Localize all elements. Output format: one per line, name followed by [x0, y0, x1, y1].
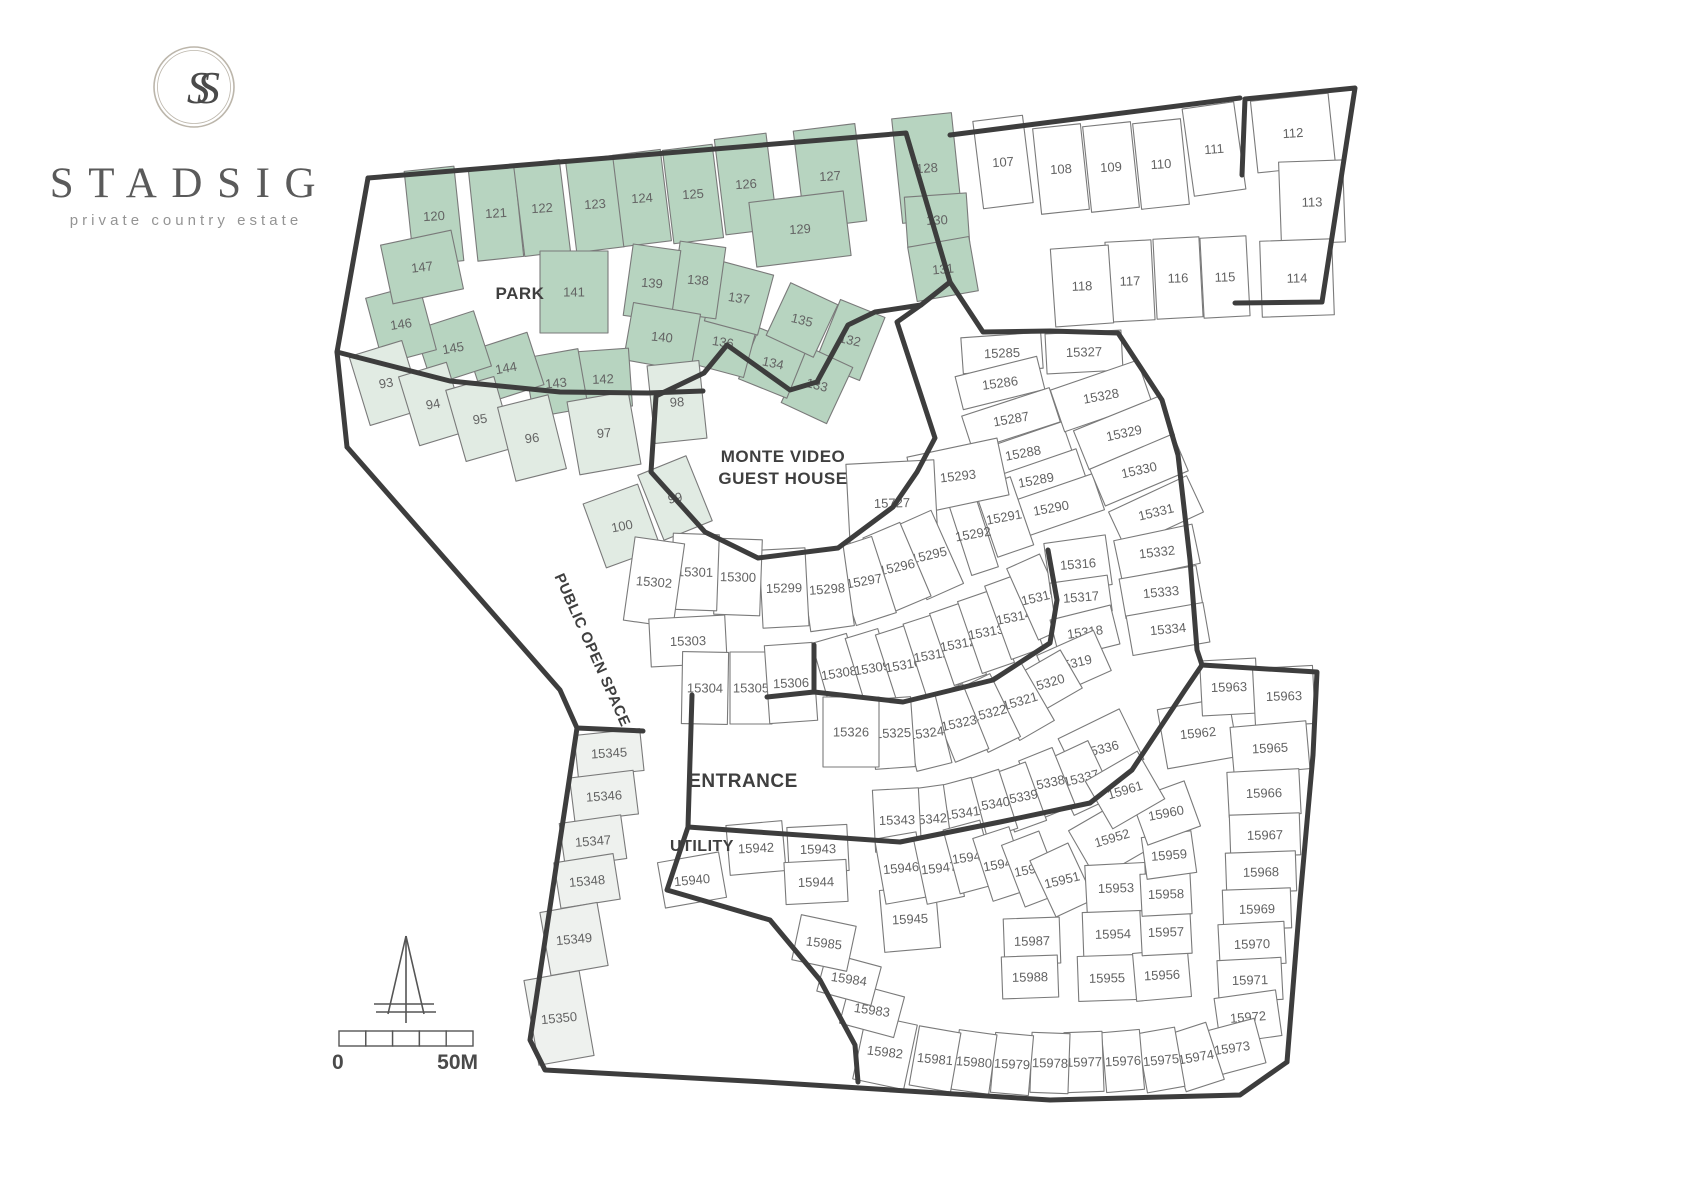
plot-15299: 15299: [759, 548, 809, 628]
plot-15346-label: 15346: [585, 787, 622, 804]
plot-15966: 15966: [1227, 769, 1301, 818]
plot-93-label: 93: [378, 374, 395, 391]
plot-15969-label: 15969: [1239, 901, 1275, 917]
plot-97: 97: [567, 391, 641, 475]
plot-95-label: 95: [472, 410, 489, 427]
plot-15944: 15944: [784, 859, 848, 904]
plot-15976-label: 15976: [1105, 1053, 1142, 1070]
plot-141-label: 141: [563, 285, 585, 300]
park-label: PARK: [496, 284, 545, 303]
plot-112-label: 112: [1282, 125, 1304, 141]
plot-15943-label: 15943: [800, 841, 837, 857]
plot-108-label: 108: [1050, 161, 1073, 177]
plot-129-label: 129: [789, 221, 812, 237]
plot-15285-label: 15285: [984, 345, 1021, 361]
estate-plots: 1528515286152871528815289152901529115292…: [623, 330, 1315, 1096]
reserve-plots: 153451534615347153481534915350: [524, 729, 644, 1066]
plot-127-label: 127: [819, 168, 842, 184]
plot-15325-label: 15325: [875, 725, 912, 741]
plot-117-label: 117: [1119, 273, 1140, 289]
plot-15316-label: 15316: [1059, 555, 1096, 573]
plot-15979-label: 15979: [994, 1056, 1031, 1073]
entrance-label: ENTRANCE: [688, 771, 798, 792]
plot-15978-label: 15978: [1032, 1055, 1068, 1071]
plot-15966-label: 15966: [1246, 785, 1283, 801]
logo: SS STADSIG private country estate: [50, 47, 330, 229]
plot-15942-label: 15942: [738, 840, 775, 857]
plot-15326: 15326: [823, 697, 879, 767]
plot-114: 114: [1260, 239, 1335, 317]
plot-115-label: 115: [1214, 269, 1235, 285]
plot-15348-label: 15348: [568, 872, 605, 890]
plot-15988-label: 15988: [1012, 969, 1048, 985]
plot-98-label: 98: [669, 394, 684, 410]
plot-15988: 15988: [1001, 955, 1058, 999]
plot-15959-label: 15959: [1150, 846, 1187, 864]
plot-15970-label: 15970: [1234, 936, 1271, 952]
plot-15968-label: 15968: [1243, 864, 1279, 880]
plot-15955-label: 15955: [1089, 970, 1125, 986]
plot-15953: 15953: [1085, 862, 1147, 913]
plot-15958-label: 15958: [1148, 886, 1185, 902]
plot-15945-label: 15945: [892, 911, 929, 928]
plot-15963: 15963: [1253, 665, 1316, 726]
plot-15965-label: 15965: [1252, 740, 1289, 757]
plot-138-label: 138: [687, 272, 710, 289]
plot-110: 110: [1133, 119, 1190, 210]
plot-15348: 15348: [554, 854, 620, 909]
plot-15963-label: 15963: [1266, 688, 1303, 704]
plot-142-label: 142: [592, 371, 614, 387]
north-plots: 107108109110111112113114115116117118: [973, 93, 1346, 327]
plot-113-label: 113: [1301, 194, 1322, 209]
plot-116: 116: [1153, 237, 1203, 319]
plot-118-label: 118: [1071, 278, 1092, 294]
plot-111-label: 111: [1204, 141, 1225, 157]
plot-15303-label: 15303: [670, 633, 707, 649]
plot-108: 108: [1033, 124, 1090, 215]
scale-end-label: 50M: [437, 1051, 478, 1074]
plot-141: 141: [540, 251, 608, 333]
plot-97-label: 97: [596, 425, 612, 441]
plot-15299-label: 15299: [766, 580, 803, 596]
plot-15345-label: 15345: [591, 744, 628, 761]
plot-15967-label: 15967: [1247, 827, 1283, 843]
site-map: 1201211221231241251261271281291301311321…: [0, 0, 1697, 1200]
plot-94-label: 94: [425, 395, 442, 412]
scale-segment-4: [419, 1031, 446, 1046]
plot-107-label: 107: [992, 154, 1015, 170]
plot-15963-label: 15963: [1211, 679, 1248, 695]
plot-15306: 15306: [764, 642, 817, 723]
logo-title: STADSIG: [50, 160, 330, 207]
plot-126-label: 126: [735, 176, 758, 192]
north-arrow-icon: [374, 936, 436, 1023]
plot-115: 115: [1200, 236, 1250, 318]
plot-15944-label: 15944: [798, 874, 835, 890]
plot-118: 118: [1050, 245, 1113, 327]
plot-121-label: 121: [485, 205, 508, 221]
scale-segment-5: [446, 1031, 473, 1046]
plot-15977-label: 15977: [1066, 1054, 1102, 1070]
plot-15347-label: 15347: [574, 832, 611, 850]
plot-15957-label: 15957: [1148, 924, 1185, 940]
scale-start-label: 0: [332, 1051, 344, 1074]
plot-15302-label: 15302: [635, 573, 672, 591]
plot-15978: 15978: [1030, 1032, 1070, 1093]
plot-15306-label: 15306: [773, 675, 810, 691]
plot-15956: 15956: [1133, 949, 1192, 1002]
plots-layer: 1201211221231241251261271281291301311321…: [349, 93, 1345, 1095]
scale-segment-1: [339, 1031, 366, 1046]
plot-147: 147: [381, 230, 464, 304]
plot-15976: 15976: [1101, 1029, 1144, 1092]
utility-label: UTILITY: [670, 838, 734, 855]
plot-15955: 15955: [1077, 955, 1137, 1002]
plot-15343-label: 15343: [879, 812, 916, 828]
site-plan-page: 1201211221231241251261271281291301311321…: [0, 0, 1697, 1200]
plot-15326-label: 15326: [833, 725, 869, 740]
plot-140-label: 140: [650, 328, 673, 345]
plot-15987-label: 15987: [1014, 933, 1050, 949]
plot-125-label: 125: [682, 186, 705, 202]
plot-15327-label: 15327: [1066, 344, 1103, 360]
plot-15954: 15954: [1082, 910, 1144, 957]
plot-15953-label: 15953: [1098, 880, 1135, 896]
plot-137-label: 137: [727, 289, 751, 307]
plot-15298-label: 15298: [808, 580, 845, 598]
plot-131: 131: [908, 237, 979, 302]
plot-15346: 15346: [570, 770, 639, 821]
scale-segment-3: [393, 1031, 420, 1046]
plot-147-label: 147: [410, 258, 433, 275]
plot-111: 111: [1182, 102, 1246, 196]
plot-15985: 15985: [792, 915, 856, 972]
guest-house-label: MONTE VIDEOGUEST HOUSE: [718, 447, 847, 488]
plot-146-label: 146: [389, 315, 413, 333]
plot-114-label: 114: [1286, 270, 1307, 285]
scale-bar: 0 50M: [332, 1031, 478, 1074]
logo-tagline: private country estate: [70, 212, 303, 229]
plot-120-label: 120: [423, 208, 446, 224]
plot-15954-label: 15954: [1095, 926, 1131, 942]
plot-96-label: 96: [524, 430, 540, 447]
plot-129: 129: [749, 191, 851, 267]
plot-109: 109: [1083, 122, 1140, 213]
plot-15956-label: 15956: [1144, 967, 1181, 984]
plot-110-label: 110: [1150, 156, 1172, 172]
plot-122-label: 122: [531, 200, 554, 216]
plot-123-label: 123: [584, 196, 607, 212]
plot-15305-label: 15305: [733, 681, 769, 696]
public-open-space-label: PUBLIC OPEN SPACE: [551, 571, 634, 729]
plot-15968: 15968: [1225, 851, 1296, 893]
plot-15300-label: 15300: [720, 569, 756, 585]
plot-15980-label: 15980: [955, 1053, 992, 1071]
plot-124-label: 124: [631, 190, 654, 206]
plot-139-label: 139: [641, 275, 664, 292]
plot-15979: 15979: [990, 1032, 1033, 1095]
plot-116-label: 116: [1167, 270, 1188, 286]
plot-15965: 15965: [1230, 721, 1310, 775]
plot-15327: 15327: [1045, 330, 1123, 374]
plot-15971-label: 15971: [1232, 972, 1269, 988]
plot-15317-label: 15317: [1062, 588, 1099, 606]
scale-segment-2: [366, 1031, 393, 1046]
plot-15304: 15304: [681, 652, 728, 725]
plot-15301-label: 15301: [677, 564, 713, 580]
plot-109-label: 109: [1100, 159, 1123, 175]
plot-125: 125: [662, 144, 723, 243]
